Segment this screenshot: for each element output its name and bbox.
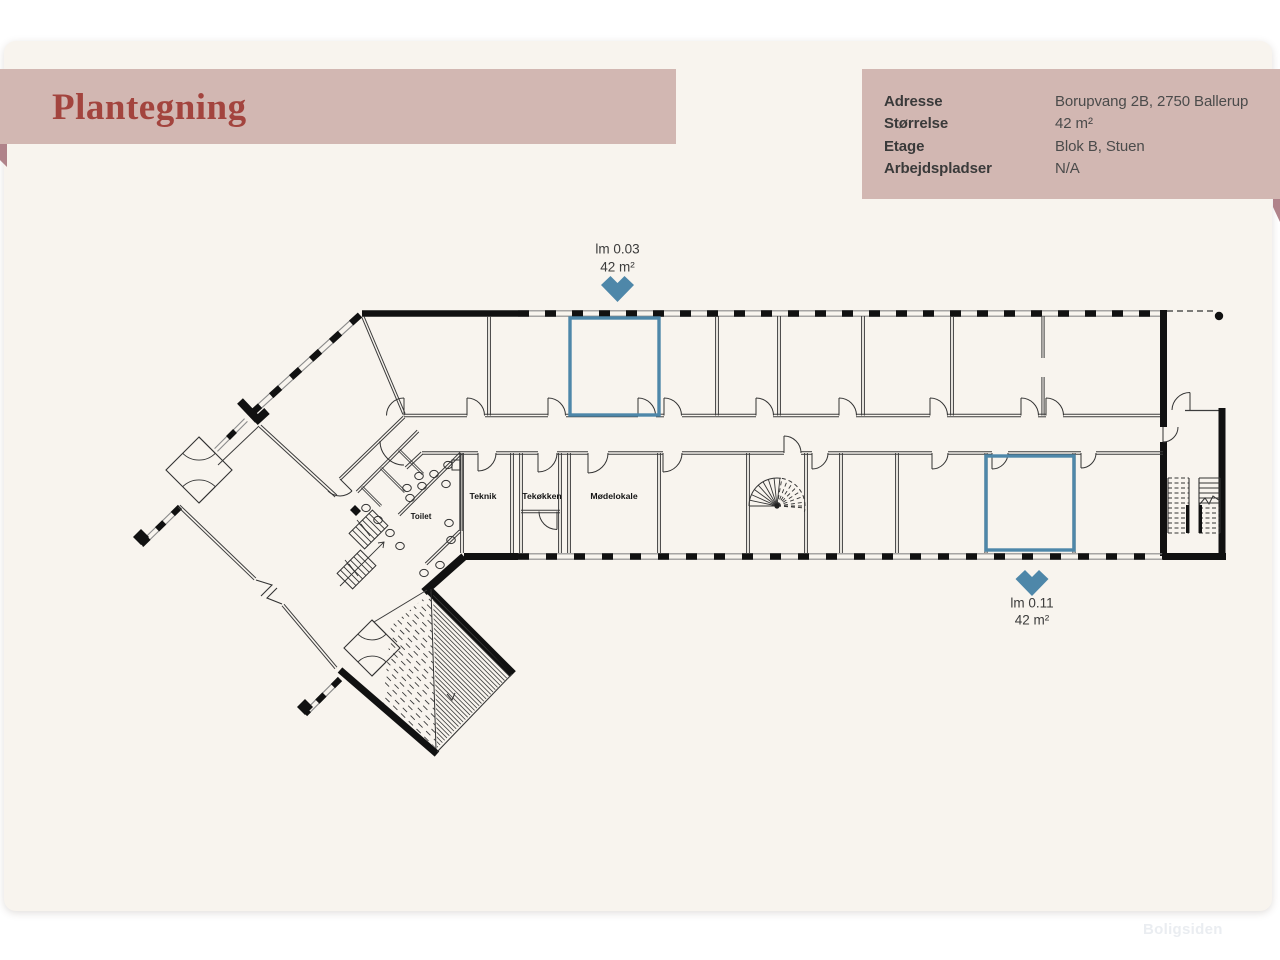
svg-text:Teknik: Teknik	[470, 491, 497, 501]
svg-text:lm 0.03: lm 0.03	[595, 242, 639, 257]
svg-text:42 m²: 42 m²	[1015, 613, 1050, 628]
svg-text:Mødelokale: Mødelokale	[590, 491, 637, 501]
svg-text:Toilet: Toilet	[411, 512, 432, 521]
svg-text:Tekøkken: Tekøkken	[522, 491, 561, 501]
svg-text:42 m²: 42 m²	[600, 260, 635, 275]
svg-text:lm 0.11: lm 0.11	[1010, 596, 1053, 611]
